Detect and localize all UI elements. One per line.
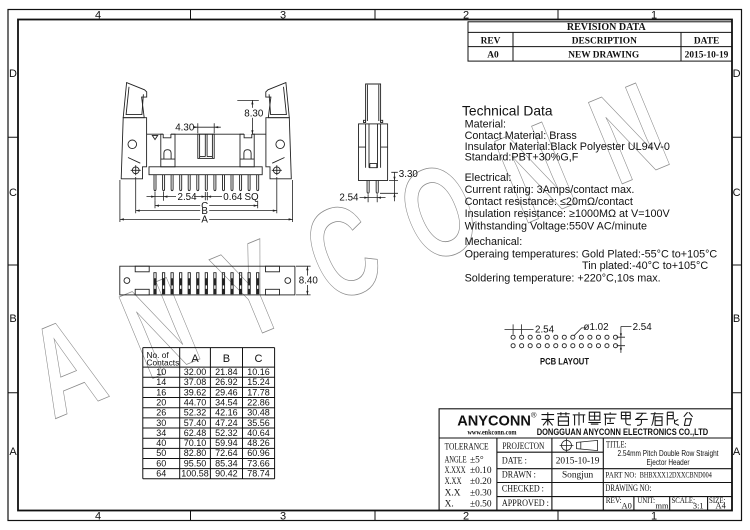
svg-text:ANGLE: ANGLE <box>445 456 467 466</box>
svg-text:REVISION DATA: REVISION DATA <box>567 22 647 33</box>
svg-text:47.24: 47.24 <box>215 418 238 428</box>
svg-text:35.56: 35.56 <box>247 418 270 428</box>
svg-text:59.94: 59.94 <box>215 438 238 448</box>
svg-text:2015-10-19: 2015-10-19 <box>685 51 729 61</box>
svg-text:50: 50 <box>156 448 166 458</box>
svg-text:Mechanical:: Mechanical: <box>465 236 523 248</box>
svg-text:2: 2 <box>463 511 469 523</box>
svg-text:4: 4 <box>95 511 101 523</box>
svg-text:Current rating: 3Amps/contact: Current rating: 3Amps/contact max. <box>465 184 635 196</box>
svg-text:64: 64 <box>156 469 166 479</box>
svg-text:A: A <box>191 353 199 365</box>
svg-text:APPROVED :: APPROVED : <box>502 499 549 509</box>
svg-text:15.24: 15.24 <box>247 377 270 387</box>
svg-text:DRAWN :: DRAWN : <box>502 471 536 481</box>
svg-text:90.42: 90.42 <box>215 469 238 479</box>
svg-text:4.30: 4.30 <box>175 122 195 133</box>
svg-text:52.32: 52.32 <box>215 428 238 438</box>
svg-text:C: C <box>255 353 263 365</box>
svg-text:B: B <box>223 353 230 365</box>
svg-text:30.48: 30.48 <box>247 408 270 418</box>
svg-text:X.: X. <box>445 499 454 509</box>
svg-text:48.26: 48.26 <box>247 438 270 448</box>
svg-text:20: 20 <box>156 397 166 407</box>
svg-text:26.92: 26.92 <box>215 377 238 387</box>
svg-text:60: 60 <box>156 458 166 468</box>
svg-text:ø1.02: ø1.02 <box>584 322 609 333</box>
svg-text:60.96: 60.96 <box>247 448 270 458</box>
svg-text:Contact Material: Brass: Contact Material: Brass <box>465 130 578 142</box>
svg-text:8.40: 8.40 <box>299 276 319 287</box>
svg-text:70.10: 70.10 <box>184 438 207 448</box>
svg-text:UNIT:: UNIT: <box>638 496 656 505</box>
svg-text:57.40: 57.40 <box>184 418 207 428</box>
svg-text:Contact resistance: ≤20mΩ/cont: Contact resistance: ≤20mΩ/contact <box>465 196 633 208</box>
svg-text:B: B <box>733 313 740 325</box>
svg-text:Material:: Material: <box>465 119 506 131</box>
svg-text:95.50: 95.50 <box>184 458 207 468</box>
svg-text:72.64: 72.64 <box>215 448 238 458</box>
svg-text:PART NO:: PART NO: <box>605 470 636 480</box>
svg-text:2.54: 2.54 <box>633 322 653 333</box>
svg-text:DONGGUAN ANYCONN ELECTRONICS: DONGGUAN ANYCONN ELECTRONICS CO.,LTD <box>537 427 709 437</box>
svg-text:A: A <box>201 214 208 225</box>
svg-text:Standard:PBT+30%G,F: Standard:PBT+30%G,F <box>465 152 579 164</box>
svg-text:B: B <box>9 313 16 325</box>
svg-text:Ejector Header: Ejector Header <box>647 458 690 467</box>
svg-text:X.XX: X.XX <box>445 477 462 487</box>
svg-text:X.XXX: X.XXX <box>445 466 466 476</box>
svg-text:DATE :: DATE : <box>502 457 527 467</box>
svg-text:17.78: 17.78 <box>247 387 270 397</box>
svg-text:PROJECTON: PROJECTON <box>502 442 544 452</box>
svg-text:2.54: 2.54 <box>535 325 555 336</box>
svg-text:1: 1 <box>651 10 657 22</box>
svg-text:Operaing temperatures: Gold Pl: Operaing temperatures: Gold Plated:-55°C… <box>465 249 718 261</box>
svg-text:D: D <box>9 68 17 80</box>
svg-text:±0.10: ±0.10 <box>470 466 492 476</box>
svg-text:2: 2 <box>463 10 469 22</box>
svg-text:3.30: 3.30 <box>399 169 419 180</box>
svg-text:40: 40 <box>156 438 166 448</box>
svg-text:30: 30 <box>156 418 166 428</box>
svg-text:3:1: 3:1 <box>693 502 704 511</box>
svg-text:A4: A4 <box>716 502 727 511</box>
svg-text:100.58: 100.58 <box>181 469 209 479</box>
svg-text:A0: A0 <box>622 502 632 511</box>
svg-text:1: 1 <box>651 511 657 523</box>
svg-text:73.66: 73.66 <box>247 458 270 468</box>
svg-text:DATE: DATE <box>694 37 719 47</box>
svg-text:26: 26 <box>156 408 166 418</box>
svg-text:52.32: 52.32 <box>184 408 207 418</box>
svg-text:4: 4 <box>95 10 101 22</box>
svg-text:10.16: 10.16 <box>247 367 270 377</box>
svg-text:SCALE:: SCALE: <box>672 496 696 505</box>
svg-text:Songjun: Songjun <box>562 471 594 481</box>
svg-text:CHECKED :: CHECKED : <box>502 485 544 495</box>
svg-text:SQ: SQ <box>245 192 260 203</box>
svg-text:0.64: 0.64 <box>223 192 243 203</box>
svg-text:www.enkconn.com: www.enkconn.com <box>468 428 518 437</box>
svg-text:Technical Data: Technical Data <box>462 103 553 118</box>
svg-text:3: 3 <box>280 10 286 22</box>
svg-text:BHBXXX12DXXCBND004: BHBXXX12DXXCBND004 <box>640 471 713 480</box>
svg-text:Tin plated:-40°C to+105°C: Tin plated:-40°C to+105°C <box>582 260 708 272</box>
svg-text:A0: A0 <box>487 51 499 61</box>
svg-text:39.62: 39.62 <box>184 387 207 397</box>
svg-text:2.54: 2.54 <box>339 193 359 204</box>
svg-text:21.84: 21.84 <box>215 367 238 377</box>
svg-text:±0.50: ±0.50 <box>470 499 492 509</box>
svg-text:A: A <box>9 446 17 458</box>
svg-text:34: 34 <box>156 428 166 438</box>
svg-text:C: C <box>9 187 17 199</box>
svg-text:85.34: 85.34 <box>215 458 238 468</box>
svg-text:mm: mm <box>655 502 669 511</box>
svg-text:42.16: 42.16 <box>215 408 238 418</box>
svg-text:Electrical:: Electrical: <box>465 172 512 184</box>
svg-text:C: C <box>733 187 741 199</box>
svg-text:A: A <box>733 446 741 458</box>
svg-text:PCB LAYOUT: PCB LAYOUT <box>540 356 589 367</box>
svg-text:8.30: 8.30 <box>244 109 264 120</box>
svg-text:16: 16 <box>156 387 166 397</box>
svg-text:2.54: 2.54 <box>178 192 198 203</box>
svg-text:37.08: 37.08 <box>184 377 207 387</box>
svg-text:D: D <box>733 68 741 80</box>
svg-text:X.X: X.X <box>445 488 461 498</box>
svg-text:REV: REV <box>481 37 501 47</box>
svg-text:10: 10 <box>156 367 166 377</box>
svg-text:®: ® <box>531 410 537 419</box>
svg-text:DESCRIPTION: DESCRIPTION <box>572 37 637 47</box>
svg-text:32.00: 32.00 <box>184 367 207 377</box>
svg-text:2015-10-19: 2015-10-19 <box>556 457 600 467</box>
svg-text:22.86: 22.86 <box>247 397 270 407</box>
svg-text:REV:: REV: <box>606 496 622 505</box>
svg-text:±0.20: ±0.20 <box>470 477 492 487</box>
svg-text:Soldering temperature: +220°C,: Soldering temperature: +220°C,10s max. <box>465 273 661 285</box>
svg-text:TOLERANCE: TOLERANCE <box>445 443 489 453</box>
svg-text:29.46: 29.46 <box>215 387 238 397</box>
svg-text:Insulation resistance: ≥1000MΩ: Insulation resistance: ≥1000MΩ at V=100V <box>465 208 671 220</box>
svg-text:44.70: 44.70 <box>184 397 207 407</box>
svg-text:±0.30: ±0.30 <box>470 488 492 498</box>
svg-text:62.48: 62.48 <box>184 428 207 438</box>
svg-text:±5°: ±5° <box>470 455 484 466</box>
svg-text:3: 3 <box>280 511 286 523</box>
svg-text:40.64: 40.64 <box>247 428 270 438</box>
svg-text:34.54: 34.54 <box>215 397 238 407</box>
svg-text:78.74: 78.74 <box>247 469 270 479</box>
svg-text:NEW DRAWING: NEW DRAWING <box>568 51 640 61</box>
svg-text:14: 14 <box>156 377 166 387</box>
svg-text:DRAWING NO:: DRAWING NO: <box>605 484 651 494</box>
svg-text:Withstanding Voltage:550V AC/m: Withstanding Voltage:550V AC/minute <box>465 221 647 233</box>
svg-text:82.80: 82.80 <box>184 448 207 458</box>
